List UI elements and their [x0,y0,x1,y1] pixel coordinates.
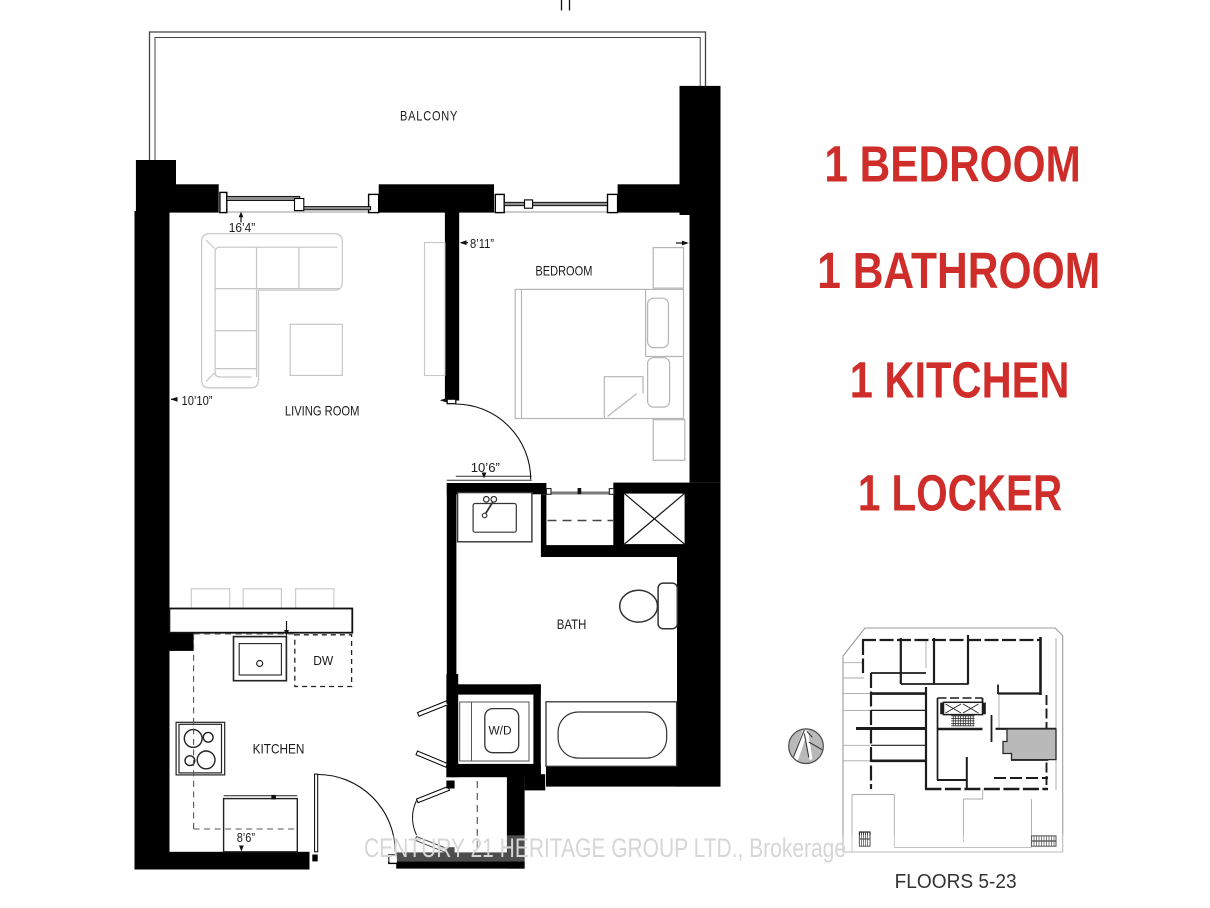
svg-text:KITCHEN: KITCHEN [253,741,305,757]
svg-text:8’11”: 8’11” [470,237,494,251]
svg-text:1 LOCKER: 1 LOCKER [858,465,1062,522]
svg-text:16’4”: 16’4” [229,221,255,235]
svg-text:1 KITCHEN: 1 KITCHEN [850,351,1070,408]
svg-text:CENTURY 21 HERITAGE GROUP LTD.: CENTURY 21 HERITAGE GROUP LTD., Brokerag… [364,833,846,863]
svg-text:10’10”: 10’10” [182,394,213,408]
svg-text:BEDROOM: BEDROOM [535,263,592,279]
svg-text:1 BEDROOM: 1 BEDROOM [824,135,1081,192]
svg-text:W/D: W/D [489,726,512,738]
svg-text:8’6”: 8’6” [237,831,255,845]
svg-text:FLOORS 5-23: FLOORS 5-23 [895,871,1017,893]
svg-text:BALCONY: BALCONY [400,108,458,124]
svg-text:LIVING ROOM: LIVING ROOM [285,403,360,419]
svg-text:DW: DW [313,653,334,668]
svg-text:BATH: BATH [557,616,587,632]
svg-text:1 BATHROOM: 1 BATHROOM [817,242,1100,299]
